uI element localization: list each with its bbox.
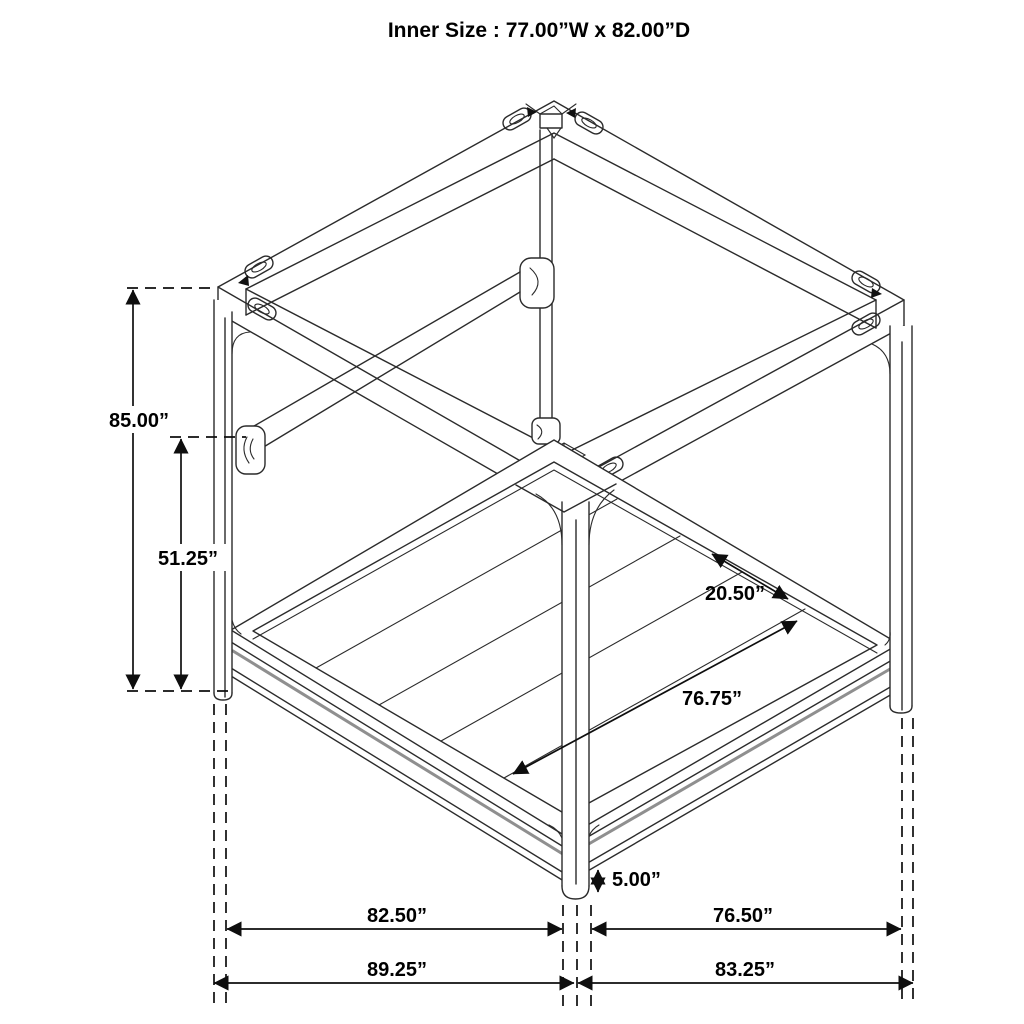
dim-overall-height-label: 85.00” bbox=[109, 410, 169, 432]
dim-front-outer: 83.25” bbox=[578, 959, 913, 983]
dim-side-inner-label: 82.50” bbox=[367, 905, 427, 927]
diagram-canvas: 85.00” 51.25” 20.50” 76.75” 5.00” 82.50” bbox=[0, 0, 1024, 1024]
dim-overall-height: 85.00” bbox=[101, 290, 177, 689]
dim-slat-spacing-label: 20.50” bbox=[705, 583, 765, 605]
canopy-slots bbox=[242, 106, 882, 485]
back-corner-cap bbox=[526, 104, 576, 138]
dim-side-inner: 82.50” bbox=[227, 905, 562, 929]
rail-hook-right bbox=[520, 258, 554, 308]
dim-front-outer-label: 83.25” bbox=[715, 959, 775, 981]
dim-front-inner-label: 76.50” bbox=[713, 905, 773, 927]
dim-front-inner: 76.50” bbox=[592, 905, 901, 929]
dim-rail-height-label: 51.25” bbox=[158, 548, 218, 570]
left-post bbox=[214, 300, 250, 700]
dim-slat-span-label: 76.75” bbox=[682, 688, 742, 710]
dim-side-outer: 89.25” bbox=[214, 959, 574, 983]
page-title: Inner Size : 77.00”W x 82.00”D bbox=[388, 19, 690, 42]
bed-frame-dimension-diagram: 85.00” 51.25” 20.50” 76.75” 5.00” 82.50” bbox=[0, 0, 1024, 1024]
rail-bracket-right bbox=[532, 418, 560, 444]
dim-foot-clearance: 5.00” bbox=[598, 869, 661, 892]
dim-side-outer-label: 89.25” bbox=[367, 959, 427, 981]
dim-foot-clearance-label: 5.00” bbox=[612, 869, 661, 891]
